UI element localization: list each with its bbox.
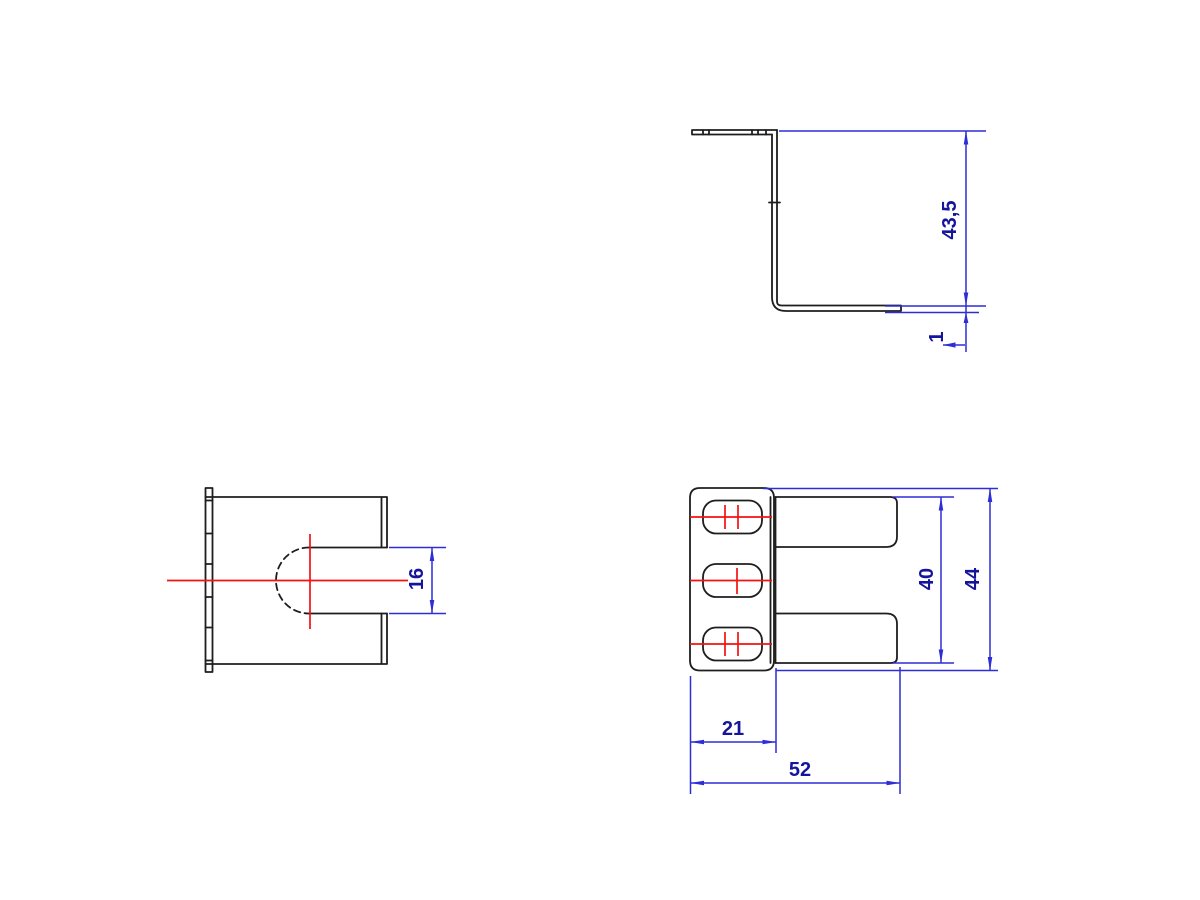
slot-3-centerline	[690, 632, 772, 656]
dim-text-52: 52	[789, 759, 811, 781]
side-top-flange-outline	[692, 130, 777, 135]
dim-text-40: 40	[916, 568, 938, 590]
plan-view: 40 44 21 52	[690, 488, 998, 794]
dim-text-1: 1	[926, 331, 948, 342]
dimension-side-thickness: 1	[885, 306, 986, 352]
dim-text-44: 44	[962, 567, 984, 590]
dimension-side-height: 43,5	[779, 131, 986, 306]
drawing-canvas: 43,5 1 16	[0, 0, 1200, 900]
front-view: 16	[167, 488, 446, 672]
dim-text-16: 16	[406, 568, 428, 590]
dimension-plan-flange-depth: 21	[691, 668, 777, 794]
drawing-sheet: 43,5 1 16	[0, 0, 1200, 900]
dimension-plan-overall-width: 44	[763, 489, 998, 671]
dim-arrow-up	[964, 313, 969, 324]
slot-1-centerline	[690, 505, 772, 529]
dim-text-21: 21	[722, 718, 744, 740]
dim-text-43-5: 43,5	[939, 201, 961, 240]
dimension-plan-finger-span: 40	[893, 497, 954, 663]
side-profile-view: 43,5 1	[692, 130, 986, 352]
plan-finger-bottom	[776, 614, 898, 664]
side-wall-and-finger-outline	[772, 130, 901, 311]
plan-finger-top	[776, 497, 898, 547]
